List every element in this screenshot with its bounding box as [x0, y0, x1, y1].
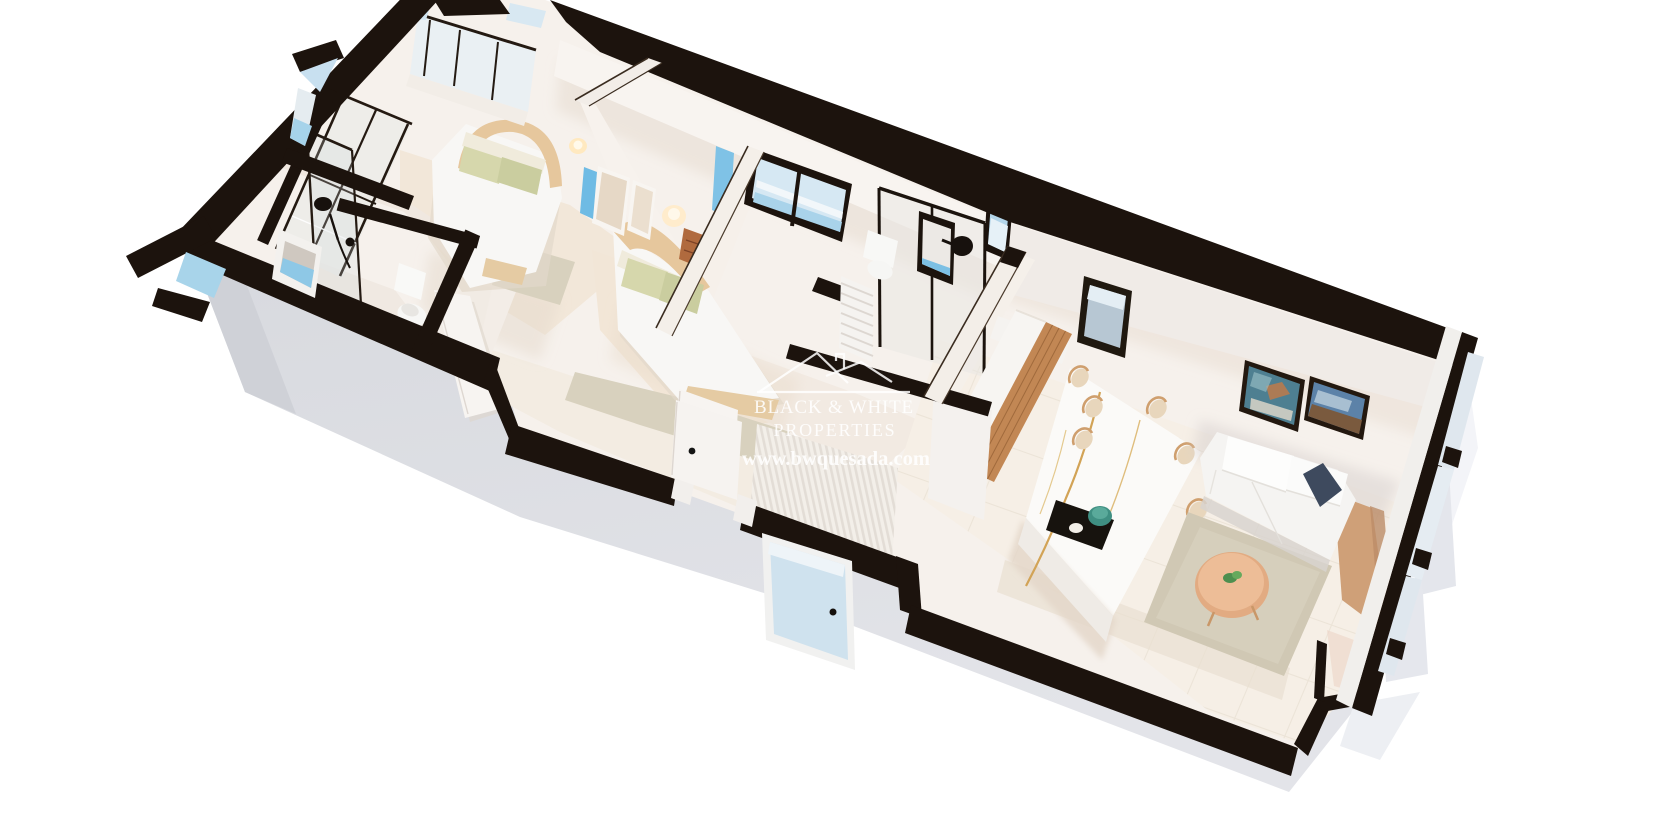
- svg-text:BLACK & WHITE: BLACK & WHITE: [754, 397, 914, 418]
- svg-text:PROPERTIES: PROPERTIES: [774, 420, 897, 440]
- svg-text:www.bwquesada.com: www.bwquesada.com: [742, 448, 930, 470]
